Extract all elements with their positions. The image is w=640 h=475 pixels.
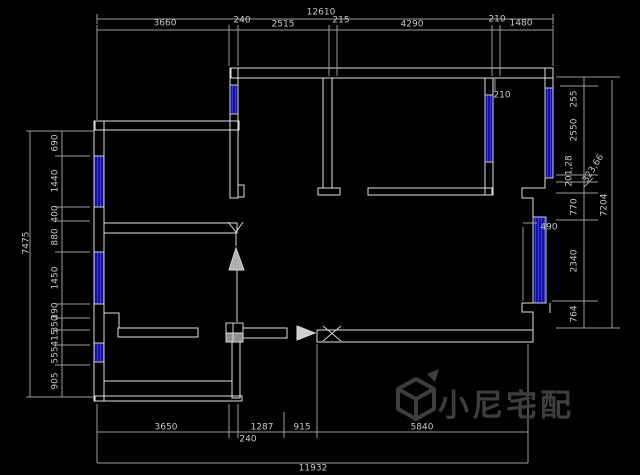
dim-label: 1450 xyxy=(52,267,61,290)
entry-arrow-up xyxy=(229,248,244,322)
dim-label: 770 xyxy=(571,198,580,215)
entry-arrow-right xyxy=(297,326,315,340)
dim-label: 240 xyxy=(239,436,256,445)
wall-right-notch-lower xyxy=(522,303,550,330)
window-wall-a xyxy=(230,85,238,114)
dim-label: 255 xyxy=(571,90,580,107)
dim-label: 240 xyxy=(233,17,250,26)
wall-e xyxy=(368,188,492,195)
wall-top xyxy=(231,68,553,78)
dim-label: 3660 xyxy=(154,20,177,29)
wall-b xyxy=(104,223,237,233)
window-left-3 xyxy=(94,343,104,362)
dim-label: 1287 xyxy=(251,424,274,433)
wall-step xyxy=(104,313,119,328)
symbols-group xyxy=(226,222,341,342)
dim-label: 2515 xyxy=(272,21,295,30)
dim-label: 1480 xyxy=(510,20,533,29)
window-right-1 xyxy=(545,88,553,178)
dim-label: 12610 xyxy=(307,9,336,18)
dim-label: 7204 xyxy=(601,194,610,217)
wall-d-foot xyxy=(318,188,340,195)
dim-label: 690 xyxy=(52,134,61,151)
dim-label: 201,28 xyxy=(566,155,575,187)
dim-label: 7475 xyxy=(23,232,32,255)
x-marker xyxy=(323,326,341,341)
wall-top-left xyxy=(95,121,239,130)
wall-right-notch-upper xyxy=(522,178,545,217)
wall-c xyxy=(232,342,240,398)
walls-group xyxy=(94,68,553,401)
dim-label: 2340 xyxy=(571,250,580,273)
dim-label: 555 xyxy=(52,346,61,363)
cube-logo-icon xyxy=(398,369,439,419)
window-wall-f xyxy=(485,95,493,162)
window-left-2 xyxy=(94,252,104,304)
dim-label: 3650 xyxy=(155,424,178,433)
wall-bottom-right xyxy=(317,330,533,342)
wall-band xyxy=(118,328,198,337)
dim-label: 5840 xyxy=(411,424,434,433)
wall-d xyxy=(323,78,332,188)
watermark-text: 小尼宅配 xyxy=(438,380,574,425)
dim-label: 4290 xyxy=(401,21,424,30)
dim-label: 2550 xyxy=(571,119,580,142)
door-swing-symbol xyxy=(228,222,243,246)
wall-f-stub xyxy=(485,78,493,95)
dim-label: 11932 xyxy=(299,465,328,474)
wall-passage-bar xyxy=(243,328,287,338)
annotation-490: 490 xyxy=(540,224,557,233)
annotation-210: 210 xyxy=(493,92,510,101)
window-left-1 xyxy=(94,156,104,207)
dim-label: 215 xyxy=(332,17,349,26)
dim-label: 880 xyxy=(52,228,61,245)
floor-plan-canvas: 12610 3660 240 2515 215 4290 210 1480 36… xyxy=(0,0,640,475)
dim-label: 415 xyxy=(52,329,61,346)
dim-label: 400 xyxy=(52,205,61,222)
dim-label: 905 xyxy=(52,372,61,389)
wall-a-foot xyxy=(238,185,244,197)
wall-bottom-outer xyxy=(95,396,242,401)
dim-label: 210 xyxy=(488,16,505,25)
dim-label: 1440 xyxy=(52,170,61,193)
dim-label: 764 xyxy=(571,305,580,322)
dim-label: 915 xyxy=(293,424,310,433)
column-box-symbol xyxy=(226,323,243,342)
